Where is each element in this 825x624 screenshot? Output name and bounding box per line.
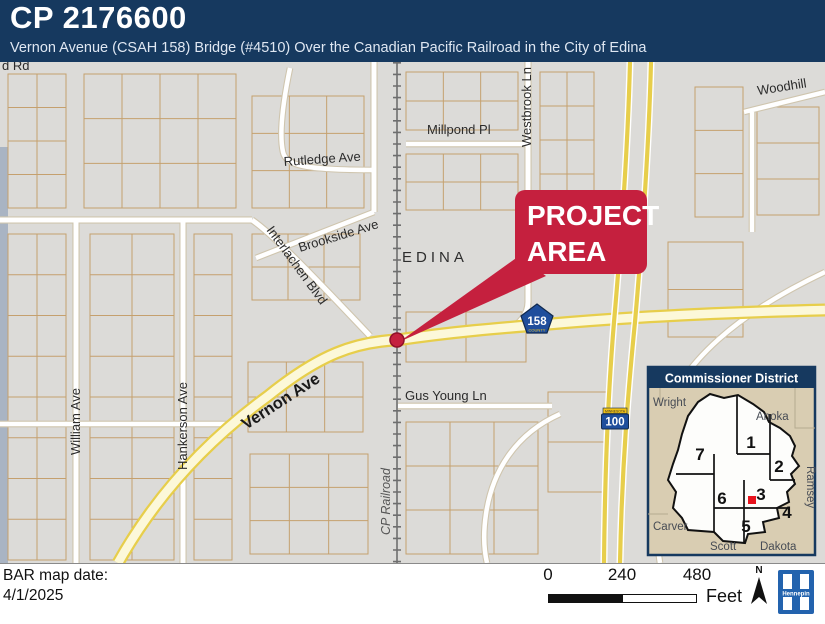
district-5: 5 — [741, 517, 750, 536]
hennepin-logo-icon: Hennepin — [778, 570, 814, 614]
street-label-millpond: Millpond Pl — [427, 122, 491, 137]
district-4: 4 — [782, 503, 792, 522]
county-label-dakota: Dakota — [760, 541, 797, 553]
header-bar: CP 2176600 Vernon Avenue (CSAH 158) Brid… — [0, 0, 825, 62]
district-3: 3 — [756, 485, 765, 504]
street-label-william: William Ave — [68, 388, 83, 455]
project-location-dot — [390, 333, 404, 347]
route-158-number: 158 — [527, 316, 547, 328]
county-label-wright: Wright — [653, 397, 687, 409]
district-7: 7 — [695, 445, 704, 464]
water-edge — [0, 147, 8, 563]
footer-bar: BAR map date: 4/1/2025 0 240 480 Feet N … — [0, 563, 825, 624]
north-label: N — [746, 565, 772, 576]
district-1: 1 — [746, 433, 755, 452]
scale-tick-480: 480 — [683, 565, 711, 585]
route-100-number: 100 — [605, 417, 624, 429]
callout-line1: PROJECT — [527, 200, 659, 231]
street-label-partial-road: d Rd — [2, 62, 29, 73]
street-label-gus-young: Gus Young Ln — [405, 388, 487, 403]
inset-project-marker — [748, 496, 756, 504]
scale-tick-240: 240 — [608, 565, 636, 585]
hennepin-logo: Hennepin — [778, 570, 814, 614]
scale-bar-fill — [549, 595, 623, 602]
route-100-shield: MINNESOTA 100 — [602, 408, 629, 429]
map-canvas: d Rd Millpond Pl Westbrook Ln Woodhill R… — [0, 62, 825, 563]
county-label-carver: Carver — [653, 521, 688, 533]
county-label-scott: Scott — [710, 541, 737, 553]
county-label-ramsey: Ramsey — [804, 466, 816, 508]
map-date-label: BAR map date: — [3, 566, 108, 586]
page-title: CP 2176600 — [10, 0, 187, 36]
street-label-cp-railroad: CP Railroad — [379, 467, 393, 535]
inset-title: Commissioner District — [665, 372, 799, 386]
callout-line2: AREA — [527, 236, 606, 267]
map-date: BAR map date: 4/1/2025 — [3, 566, 108, 606]
north-arrow: N — [746, 565, 772, 609]
city-label-edina: EDINA — [402, 249, 468, 266]
scale-bar — [548, 594, 697, 603]
commissioner-district-inset: Commissioner District 1 2 3 4 5 6 7 Wrig… — [648, 367, 816, 555]
north-arrow-icon — [748, 576, 770, 606]
scale-tick-0: 0 — [543, 565, 552, 585]
district-2: 2 — [774, 457, 783, 476]
street-label-hankerson: Hankerson Ave — [175, 382, 190, 470]
county-label-anoka: Anoka — [756, 411, 789, 423]
route-158-banner: COUNTY — [529, 328, 546, 333]
map-date-value: 4/1/2025 — [3, 586, 108, 606]
street-label-westbrook: Westbrook Ln — [519, 67, 534, 147]
map-svg: d Rd Millpond Pl Westbrook Ln Woodhill R… — [0, 62, 825, 563]
route-100-banner: MINNESOTA — [605, 409, 626, 413]
district-6: 6 — [717, 489, 726, 508]
hennepin-logo-text: Hennepin — [782, 591, 810, 597]
page: CP 2176600 Vernon Avenue (CSAH 158) Brid… — [0, 0, 825, 624]
page-subtitle: Vernon Avenue (CSAH 158) Bridge (#4510) … — [10, 40, 647, 56]
project-area-callout: PROJECT AREA — [515, 190, 659, 274]
scale-unit: Feet — [706, 586, 742, 607]
